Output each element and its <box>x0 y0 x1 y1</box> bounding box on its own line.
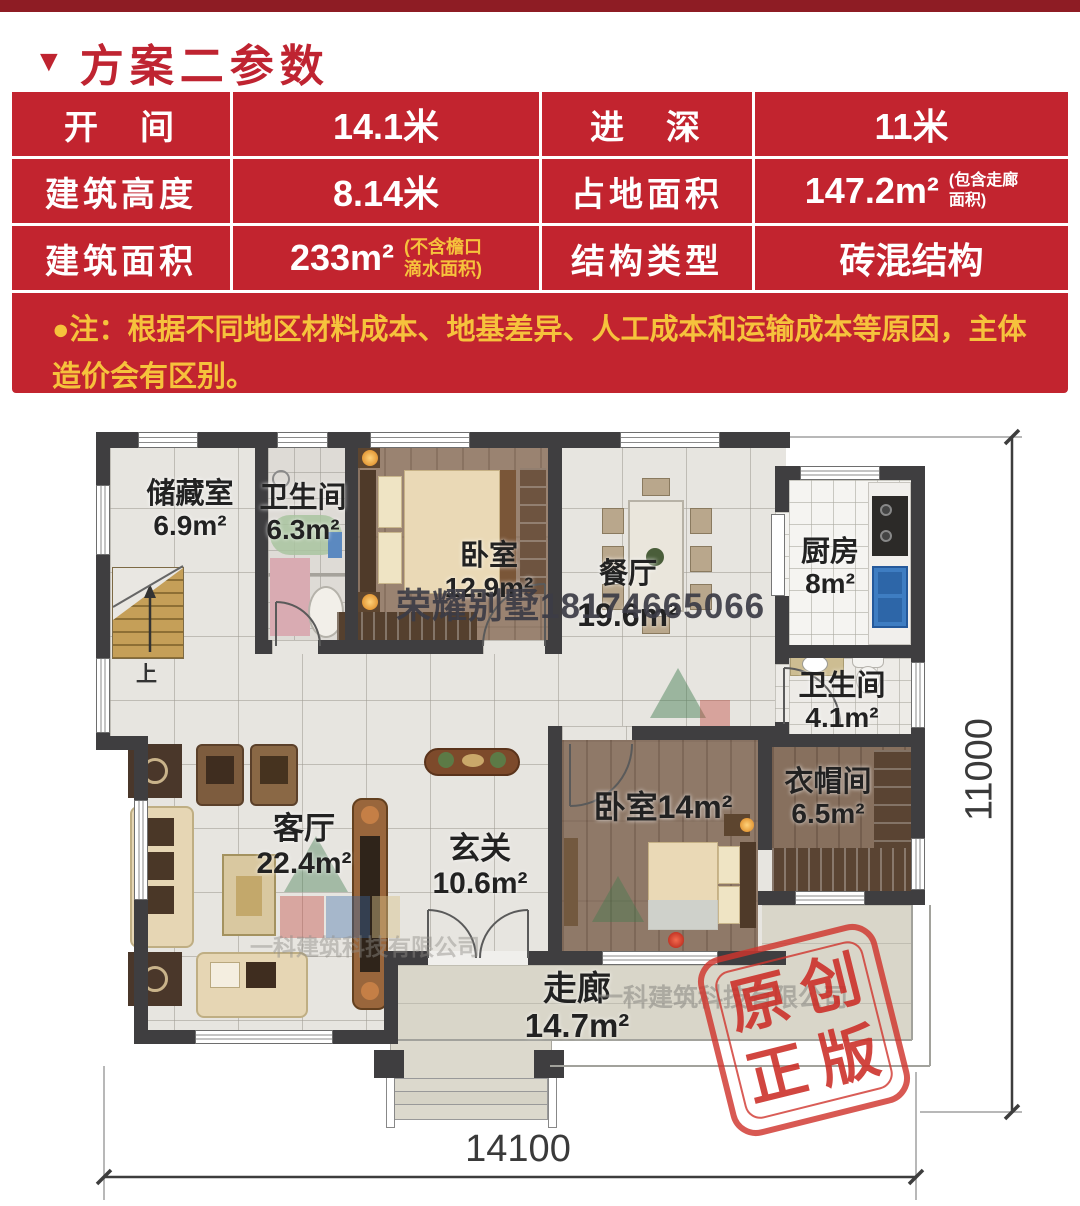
stamp-character: 版 <box>812 1021 885 1094</box>
room-label-bedroom-lower: 卧室14m² <box>594 790 733 826</box>
room-label-living: 客厅 22.4m² <box>256 812 351 880</box>
stamp-text: 原创正版 <box>712 938 896 1122</box>
dimension-depth: 11000 <box>959 710 1002 830</box>
room-label-storage: 储藏室 6.9m² <box>146 478 233 542</box>
room-label-kitchen: 厨房 8m² <box>801 536 859 600</box>
watermark-phone: 荣耀别墅18174665066 <box>396 578 765 629</box>
stair-arrow <box>113 566 183 652</box>
stamp-character: 创 <box>795 949 868 1022</box>
dimension-width: 14100 <box>458 1128 578 1171</box>
room-label-cloakroom: 衣帽间 6.5m² <box>784 766 871 830</box>
watermark-company: 一科建筑科技有限公司 <box>250 928 480 962</box>
room-label-bath-upper: 卫生间 6.3m² <box>259 482 346 546</box>
room-label-foyer: 玄关 10.6m² <box>432 832 527 900</box>
stamp-character: 原 <box>723 967 796 1040</box>
door-arcs <box>276 584 840 958</box>
stamp-character: 正 <box>741 1038 814 1111</box>
room-label-bath-lower: 卫生间 4.1m² <box>798 670 885 734</box>
